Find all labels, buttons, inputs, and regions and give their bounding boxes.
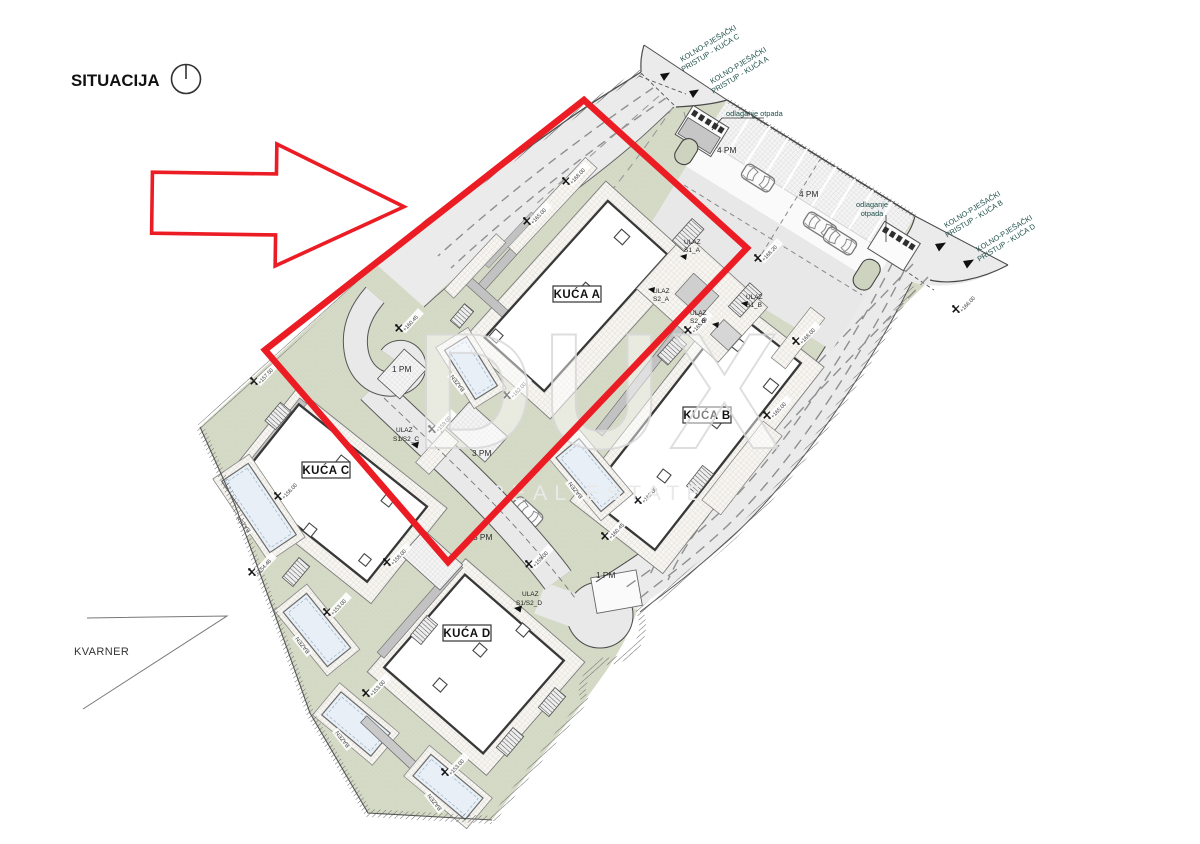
svg-text:KUĆA C: KUĆA C bbox=[302, 464, 349, 477]
svg-text:ULAZ: ULAZ bbox=[684, 239, 701, 246]
svg-text:odlaganje: odlaganje bbox=[856, 200, 888, 209]
svg-text:4 PM: 4 PM bbox=[717, 145, 736, 155]
svg-text:ULAZ: ULAZ bbox=[396, 427, 413, 434]
svg-text:4 PM: 4 PM bbox=[799, 189, 818, 199]
svg-text:ULAZ: ULAZ bbox=[522, 591, 539, 598]
svg-text:S1/S2_D: S1/S2_D bbox=[516, 600, 542, 607]
svg-text:S1_A: S1_A bbox=[684, 247, 701, 254]
svg-text:1 PM: 1 PM bbox=[596, 570, 615, 580]
svg-text:otpada: otpada bbox=[861, 209, 884, 218]
svg-text:KUĆA D: KUĆA D bbox=[443, 627, 490, 640]
svg-text:1 PM: 1 PM bbox=[392, 364, 411, 374]
svg-text:KVARNER: KVARNER bbox=[74, 646, 129, 658]
svg-text:odlaganje otpada: odlaganje otpada bbox=[726, 109, 784, 118]
svg-text:DUX: DUX bbox=[415, 299, 787, 483]
svg-text:SITUACIJA: SITUACIJA bbox=[71, 71, 160, 90]
svg-text:ULAZ: ULAZ bbox=[653, 288, 670, 295]
